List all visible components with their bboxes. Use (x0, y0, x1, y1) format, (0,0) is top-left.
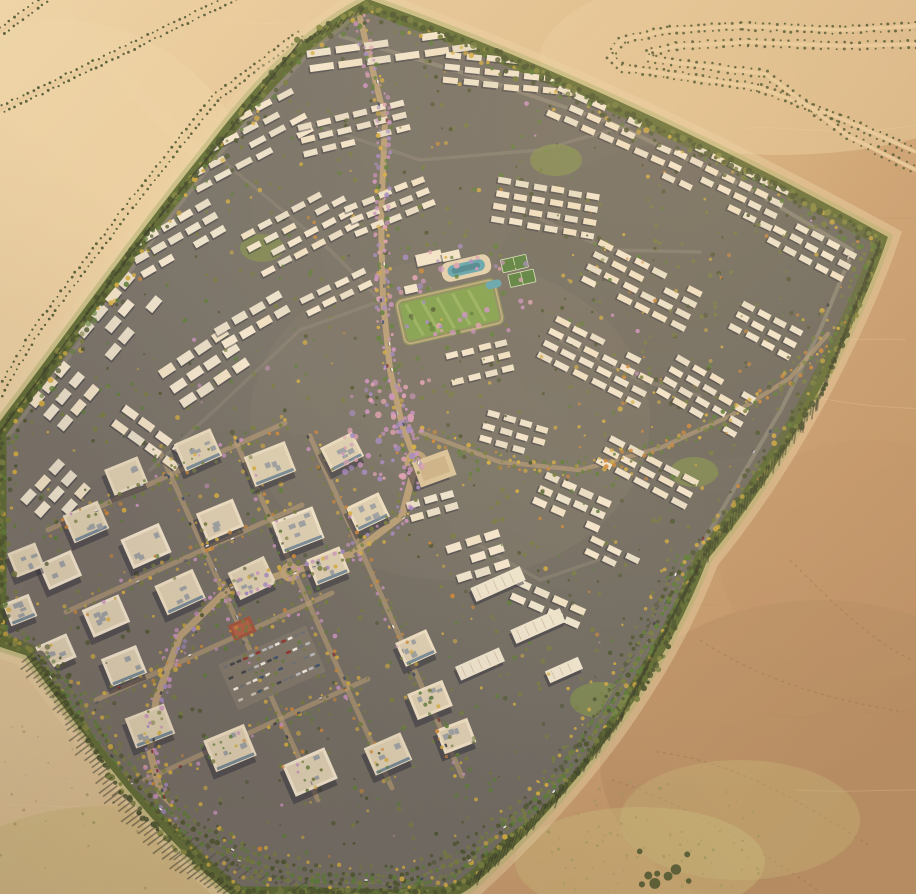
aerial-render (0, 0, 916, 894)
masterplan-aerial-view (0, 0, 916, 894)
